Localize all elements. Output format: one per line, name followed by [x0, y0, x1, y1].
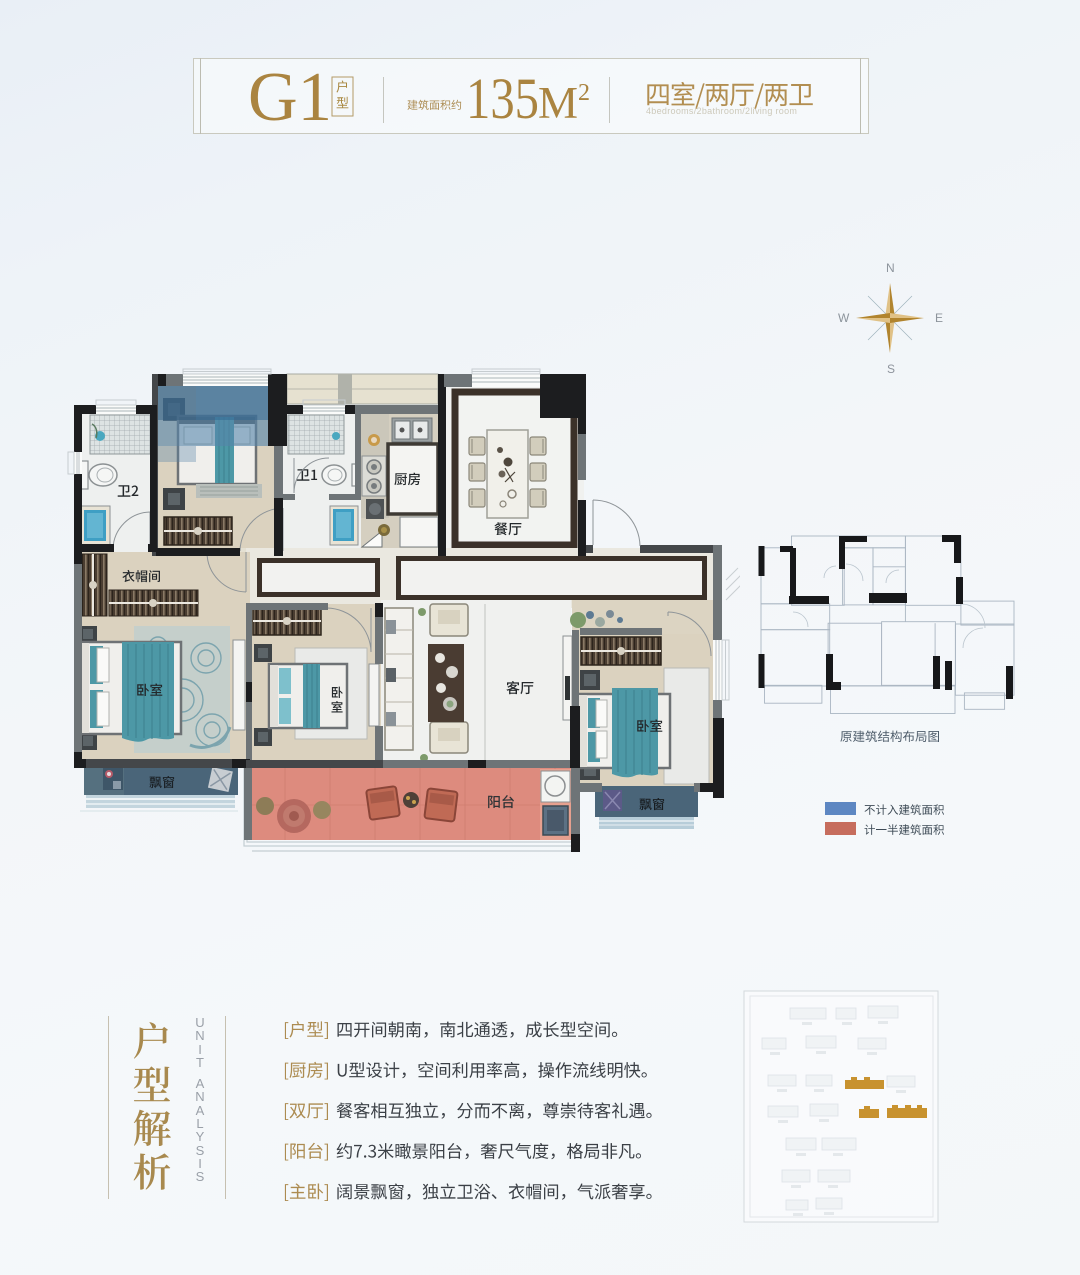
svg-text:Y: Y	[196, 1129, 205, 1144]
svg-text:S: S	[887, 362, 895, 376]
svg-text:2: 2	[578, 80, 590, 106]
svg-text:4bedrooms/2bathroom/2living ro: 4bedrooms/2bathroom/2living room	[646, 106, 797, 116]
svg-text:N: N	[195, 1089, 204, 1104]
svg-text:T: T	[196, 1055, 204, 1070]
svg-text:E: E	[935, 311, 943, 325]
svg-text:W: W	[838, 311, 850, 325]
svg-text:S: S	[196, 1169, 205, 1184]
svg-text:135: 135	[466, 66, 539, 131]
svg-text:N: N	[886, 261, 895, 275]
svg-text:G1: G1	[248, 59, 332, 135]
svg-text:M: M	[538, 78, 578, 128]
svg-text:N: N	[195, 1028, 204, 1043]
